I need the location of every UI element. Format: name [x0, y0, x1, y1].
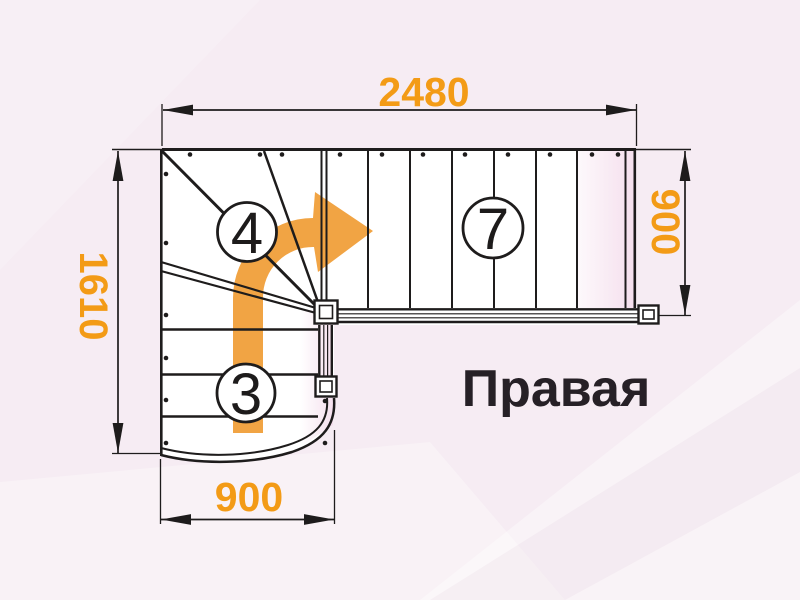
- stair-orientation-label: Правая: [462, 360, 651, 418]
- dim-top-width: 2480: [378, 69, 469, 115]
- newel-post-right: [643, 310, 654, 319]
- dim-right-height: 900: [643, 189, 687, 256]
- stair-plan-canvas: 4 7 3 2480 900 1610 900 Правая: [0, 0, 800, 600]
- lower-step-count: 3: [230, 362, 262, 427]
- stair-plan-drawing: 4 7 3 2480 900 1610 900 Правая: [0, 0, 800, 600]
- newel-post-lower: [320, 381, 332, 392]
- newel-post-center: [320, 306, 333, 319]
- dim-bottom-width: 900: [215, 474, 283, 520]
- dim-left-height: 1610: [71, 252, 115, 341]
- upper-step-count: 7: [477, 197, 509, 262]
- winder-step-count: 4: [231, 201, 263, 266]
